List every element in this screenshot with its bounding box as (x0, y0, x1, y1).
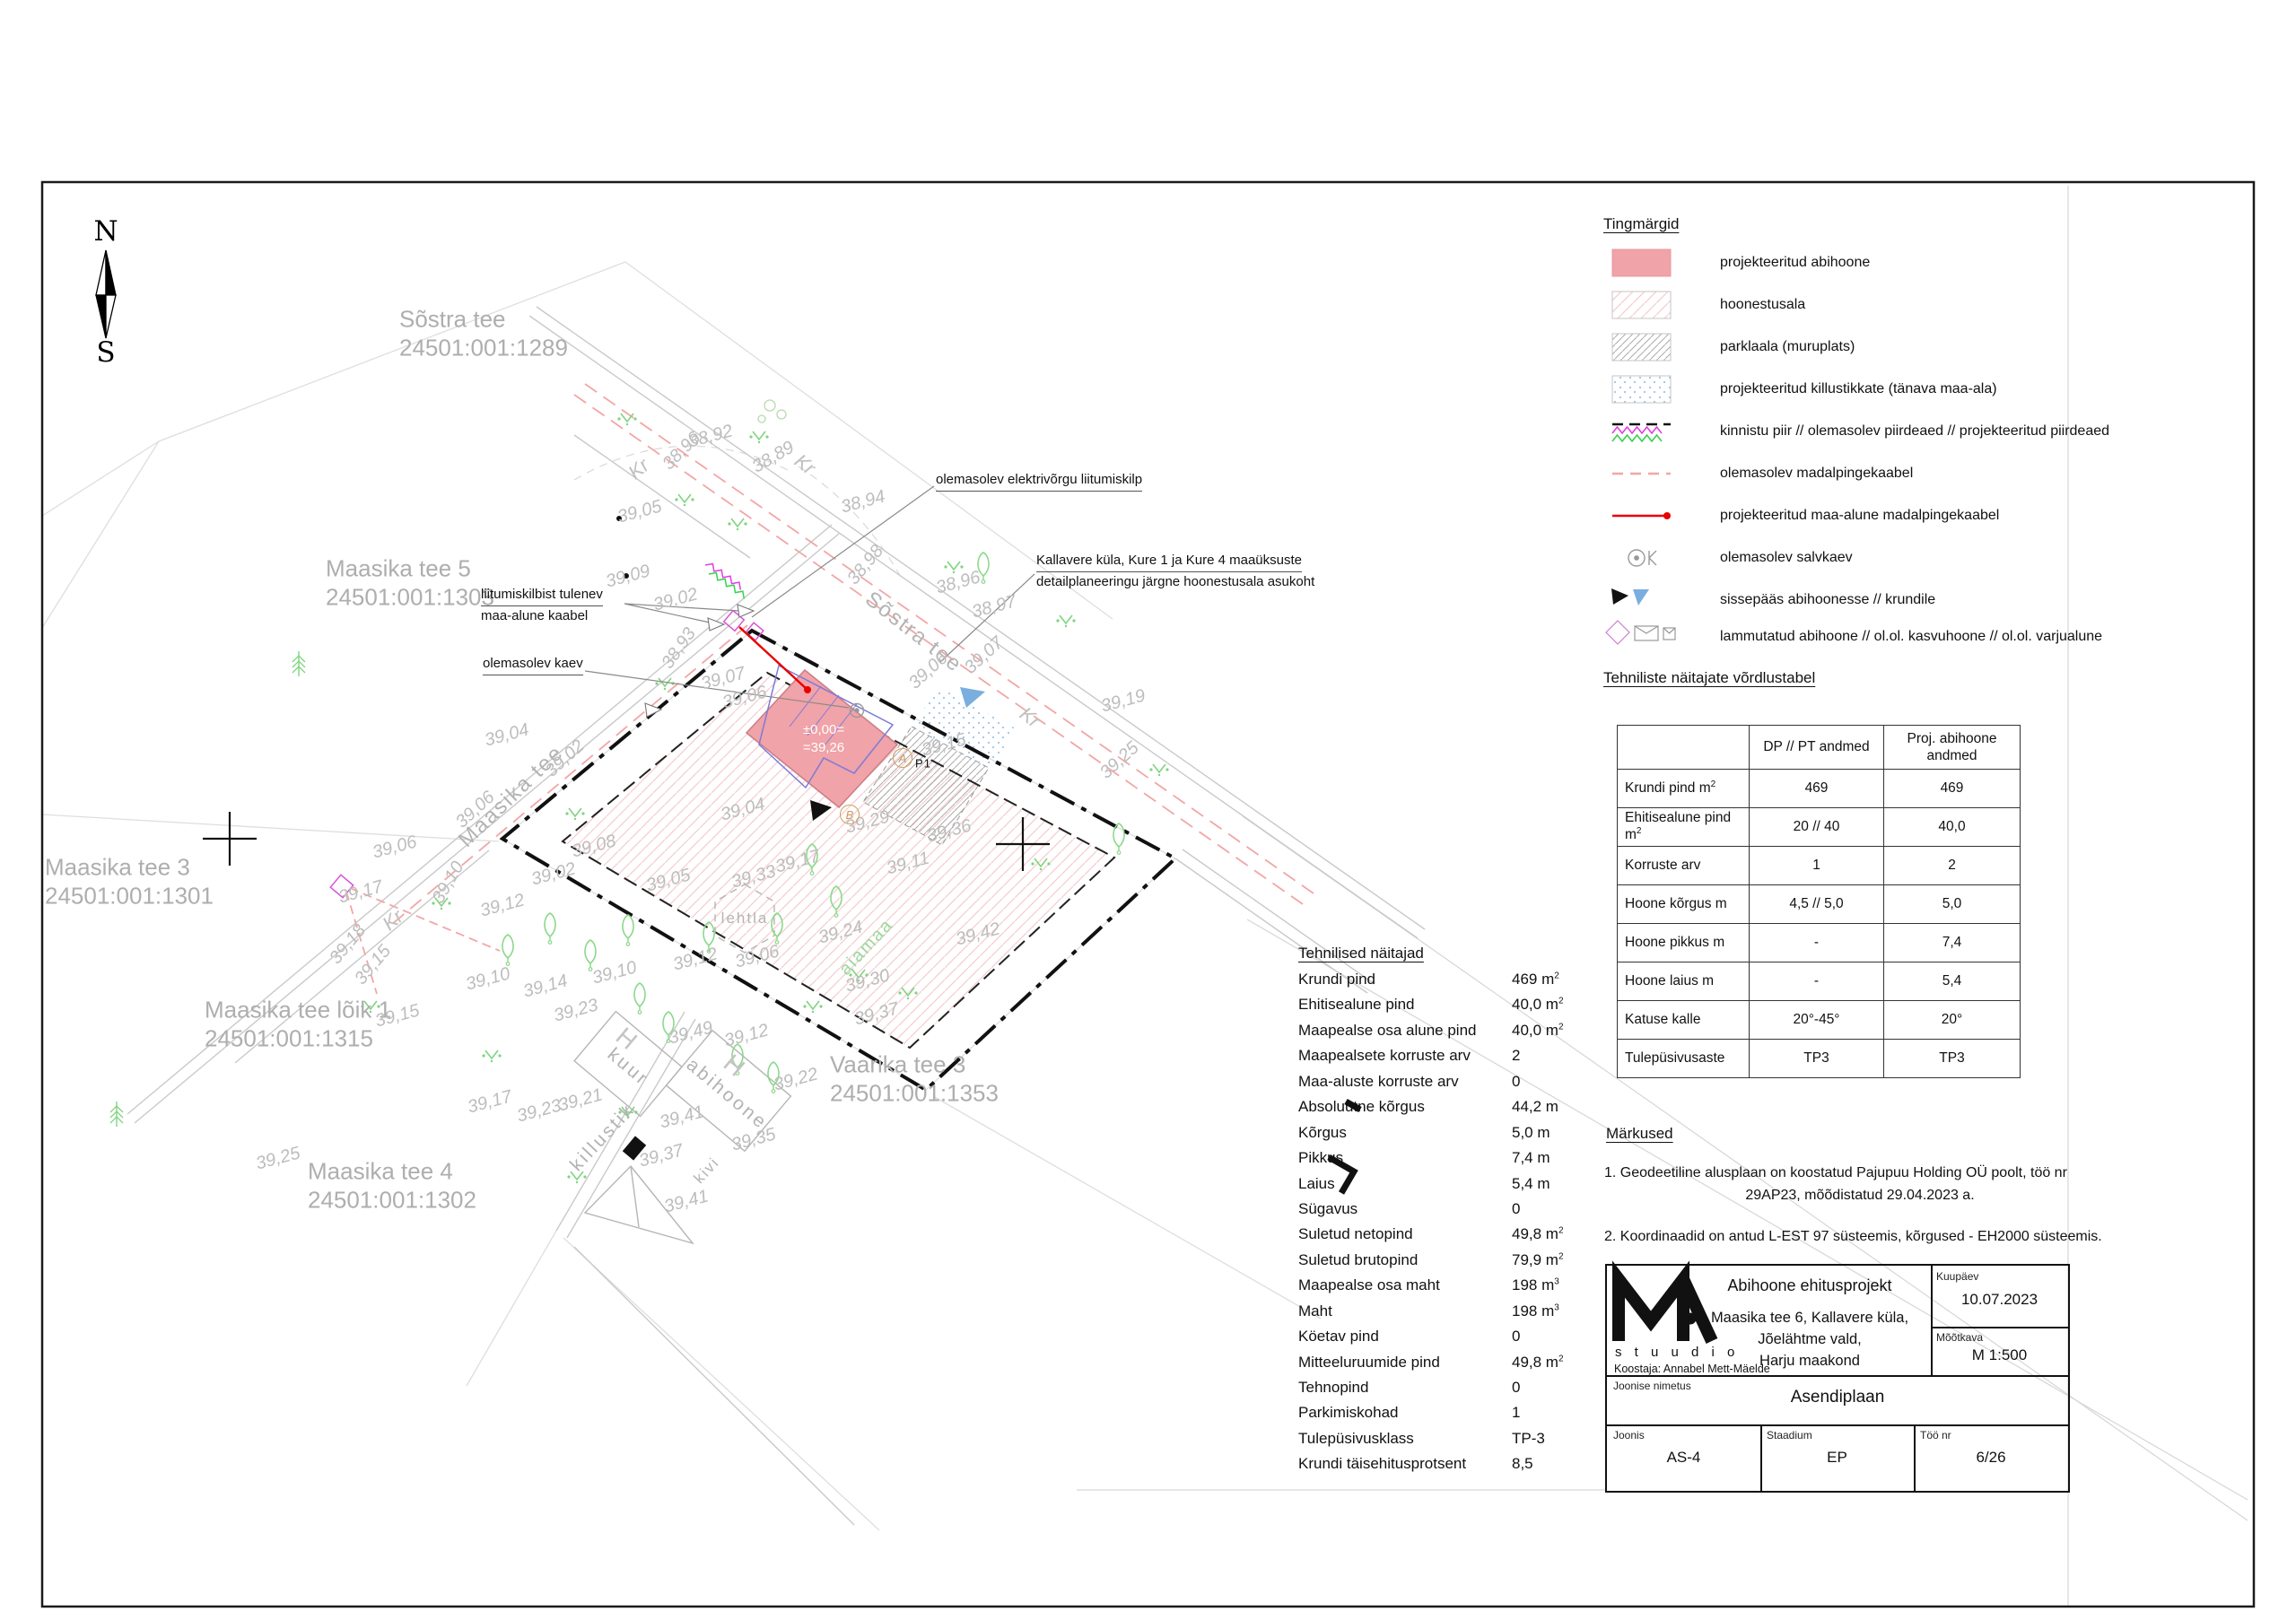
project-title: Abihoone ehitusprojekt (1689, 1276, 1930, 1295)
plan-callout: liitumiskilbist tulenev maa-alune kaabel (481, 585, 603, 626)
plan-callout: Kallavere küla, Kure 1 ja Kure 4 maaüksu… (1036, 551, 1314, 592)
north-arrow-icon (96, 250, 116, 338)
stage-value: EP (1760, 1449, 1914, 1467)
work-nr-value: 6/26 (1914, 1449, 2068, 1467)
legend-swatch-hoonestusala (1612, 292, 1671, 318)
tech-list-row: Laius 5,4 m (1298, 1175, 1612, 1200)
existing-fence-magenta (705, 561, 744, 589)
drawing-name-value: Asendiplaan (1607, 1388, 2068, 1407)
north-label-n: N (93, 215, 118, 248)
sheet-label: Joonis (1613, 1429, 1645, 1441)
legend-proposed-cable (1612, 512, 1671, 519)
plan-feature-label: P1 (915, 757, 931, 771)
title-block-divider (1607, 1424, 2068, 1426)
cmp-row: Hoone kõrgus m 4,5 // 5,0 5,0 (1618, 885, 2021, 924)
legend-demolished-shapes (1606, 621, 1675, 644)
legend-item-label: olemasolev madalpingekaabel (1720, 466, 1913, 482)
tech-list-row: Tehnopind 0 (1298, 1379, 1612, 1404)
tech-list-row: Krundi täisehitusprotsent 8,5 (1298, 1455, 1612, 1480)
cmp-row: Krundi pind m2 469 469 (1618, 770, 2021, 808)
legend-item-label: parklaala (muruplats) (1720, 339, 1855, 355)
tech-list-row: Absoluutne kõrgus 44,2 m (1298, 1098, 1612, 1123)
parcel-label: Maasika tee 424501:001:1302 (308, 1157, 476, 1214)
title-block-divider (1607, 1375, 2068, 1377)
legend-item-label: projekteeritud killustikkate (tänava maa… (1720, 381, 1997, 397)
cmp-row: Ehitisealune pind m2 20 // 40 40,0 (1618, 808, 2021, 847)
scale-value: M 1:500 (1931, 1346, 2068, 1364)
plan-callout: olemasolev elektrivõrgu liitumiskilp (936, 470, 1142, 492)
north-label-s: S (96, 336, 115, 369)
tech-list-row: Kõrgus 5,0 m (1298, 1124, 1612, 1149)
legend-item-label: projekteeritud maa-alune madalpingekaabe… (1720, 508, 1999, 524)
legend-item-label: kinnistu piir // olemasolev piirdeaed //… (1720, 423, 2109, 440)
tech-list-row: Suletud netopind 49,8 m2 (1298, 1225, 1612, 1250)
legend-well-icon (1628, 550, 1656, 566)
tech-list-row: Maapealse osa maht 198 m3 (1298, 1276, 1612, 1302)
work-nr-label: Töö nr (1920, 1429, 1951, 1441)
legend-boundary-fences (1612, 424, 1671, 441)
cmp-row: Tulepüsivusaste TP3 TP3 (1618, 1040, 2021, 1078)
plan-callout: olemasolev kaev (483, 654, 583, 675)
parcel-label: Maasika tee 324501:001:1301 (45, 853, 214, 910)
project-address: Maasika tee 6, Kallavere küla, Jõelähtme… (1677, 1308, 1942, 1372)
tech-list-row: Köetav pind 0 (1298, 1328, 1612, 1353)
legend-item-label: sissepääs abihoonesse // krundile (1720, 592, 1935, 608)
drawing-sheet: N S Tingmärgid projekteeritud abihooneho… (0, 0, 2296, 1620)
parcel-label: Vaarika tee 324501:001:1353 (830, 1050, 999, 1107)
tech-list-row: Sügavus 0 (1298, 1200, 1612, 1225)
legend-swatch-abihoone (1612, 249, 1671, 276)
parcel-label: Maasika tee 524501:001:1303 (326, 554, 494, 611)
parcel-label: Sõstra tee24501:001:1289 (399, 305, 568, 361)
legend-item-label: projekteeritud abihoone (1720, 255, 1870, 271)
cmp-row: Korruste arv 1 2 (1618, 847, 2021, 885)
tech-list-row: Mitteeluruumide pind 49,8 m2 (1298, 1354, 1612, 1379)
cmp-col-empty (1618, 726, 1750, 770)
tech-list-row: Maapealse osa alune pind 40,0 m2 (1298, 1022, 1612, 1047)
parcel-label: Maasika tee lõik 124501:001:1315 (205, 996, 391, 1052)
notes: 1. Geodeetiline alusplaan on koostatud P… (1604, 1163, 2116, 1267)
notes-title: Märkused (1606, 1125, 1673, 1143)
legend-swatch-killustik (1612, 376, 1671, 403)
legend-symbols (1606, 249, 1675, 644)
tech-list-row: Maapealsete korruste arv 2 (1298, 1047, 1612, 1072)
title-block-divider (1931, 1327, 2068, 1328)
tech-list-row: Ehitisealune pind 40,0 m2 (1298, 996, 1612, 1021)
cmp-row: Hoone laius m - 5,4 (1618, 962, 2021, 1001)
tech-list-row: Maa-aluste korruste arv 0 (1298, 1073, 1612, 1098)
date-value: 10.07.2023 (1931, 1291, 2068, 1309)
stage-label: Staadium (1767, 1429, 1812, 1441)
plan-feature-label: A (893, 748, 912, 768)
tech-list: Krundi pind 469 m2 Ehitisealune pind 40,… (1298, 971, 1612, 1481)
legend-item-label: olemasolev salvkaev (1720, 550, 1853, 566)
legend-item-label: lammutatud abihoone // ol.ol. kasvuhoone… (1720, 629, 2102, 645)
scale-label: Mõõtkava (1936, 1331, 1983, 1344)
date-label: Kuupäev (1936, 1270, 1978, 1283)
plan-feature-label: B (840, 805, 860, 824)
cmp-col-proj: Proj. abihooneandmed (1884, 726, 2021, 770)
comparison-table: DP // PT andmed Proj. abihooneandmed Kru… (1617, 725, 2021, 1078)
cmp-col-dp: DP // PT andmed (1750, 726, 1884, 770)
legend-title: Tingmärgid (1603, 215, 1679, 233)
legend-item-label: hoonestusala (1720, 297, 1805, 313)
title-block: s t u u d i o Koostaja: Annabel Mett-Mäe… (1605, 1264, 2070, 1493)
cmp-row: Hoone pikkus m - 7,4 (1618, 924, 2021, 962)
tech-list-row: Pikkus 7,4 m (1298, 1149, 1612, 1174)
plan-feature-label: lehtla (721, 910, 769, 928)
note-item: 2. Koordinaadid on antud L-EST 97 süstee… (1604, 1226, 2116, 1249)
tech-list-title: Tehnilised näitajad (1298, 945, 1424, 962)
tech-list-row: Tulepüsivusklass TP-3 (1298, 1430, 1612, 1455)
sheet-value: AS-4 (1607, 1449, 1760, 1467)
tech-list-row: Maht 198 m3 (1298, 1302, 1612, 1328)
building-elevation-label: ±0,00= =39,26 (803, 721, 844, 758)
proposed-fence-green (709, 570, 747, 598)
comparison-table-title: Tehniliste näitajate võrdlustabel (1603, 669, 1815, 687)
tech-list-row: Parkimiskohad 1 (1298, 1404, 1612, 1429)
cmp-row: Katuse kalle 20°-45° 20° (1618, 1001, 2021, 1040)
tech-list-row: Krundi pind 469 m2 (1298, 971, 1612, 996)
note-item: 1. Geodeetiline alusplaan on koostatud P… (1604, 1163, 2116, 1207)
legend-swatch-parkla (1612, 334, 1671, 361)
tech-list-row: Suletud brutopind 79,9 m2 (1298, 1251, 1612, 1276)
legend-entry-triangles (1611, 588, 1649, 605)
